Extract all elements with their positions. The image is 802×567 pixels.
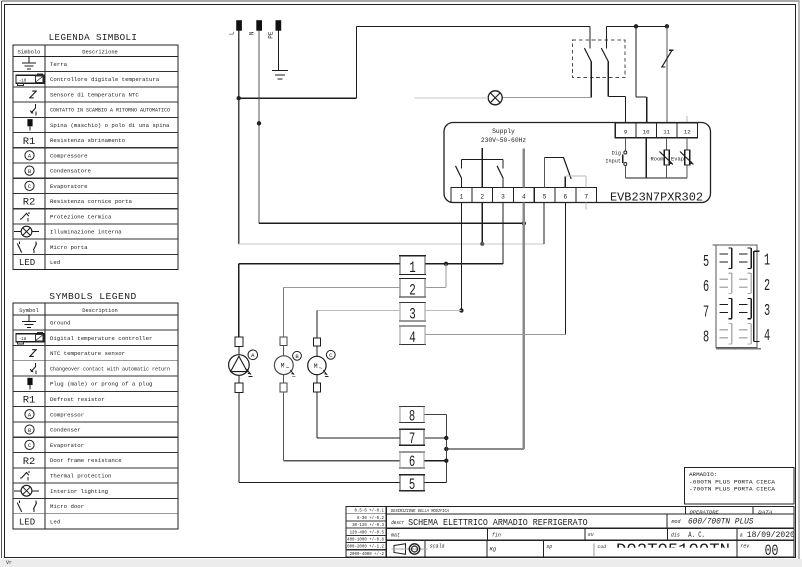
svg-text:Evaporatore: Evaporatore (50, 183, 88, 190)
svg-text:12: 12 (684, 129, 691, 136)
svg-text:Interior lighting: Interior lighting (50, 488, 108, 495)
svg-text:R2: R2 (23, 197, 36, 209)
svg-text:sv: sv (588, 532, 595, 538)
svg-text:7: 7 (703, 304, 709, 322)
svg-text:~: ~ (319, 365, 323, 372)
svg-text:LEGENDA SIMBOLI: LEGENDA SIMBOLI (49, 32, 138, 43)
svg-text:Compressore: Compressore (50, 152, 88, 159)
svg-text:Descrizione: Descrizione (82, 50, 118, 56)
svg-text:7: 7 (409, 430, 415, 448)
svg-text:N: N (249, 31, 256, 35)
svg-text:Evaporator: Evaporator (50, 442, 84, 449)
svg-text:6: 6 (409, 453, 415, 471)
svg-text:fin: fin (492, 532, 501, 538)
svg-text:scala: scala (430, 543, 445, 549)
svg-text:10: 10 (643, 129, 650, 136)
svg-text:3: 3 (409, 307, 416, 325)
svg-text:3: 3 (764, 303, 770, 321)
svg-text:Supply: Supply (492, 128, 515, 135)
svg-text:~: ~ (286, 364, 290, 371)
svg-text:DESCRIZIONE DELLA MODIFICA: DESCRIZIONE DELLA MODIFICA (391, 508, 449, 514)
svg-text:7: 7 (584, 193, 588, 200)
svg-text:R1: R1 (23, 136, 36, 148)
svg-text:Condenser: Condenser (50, 427, 81, 434)
svg-text:5: 5 (543, 193, 547, 200)
svg-text:120-400 +/-0.5: 120-400 +/-0.5 (350, 530, 385, 535)
svg-text:Micro porta: Micro porta (50, 244, 88, 251)
svg-text:Evap: Evap (671, 157, 684, 163)
svg-text:Kg: Kg (490, 545, 497, 552)
svg-text:Ground: Ground (50, 319, 70, 326)
svg-text:6: 6 (564, 193, 568, 200)
svg-text:-700TN PLUS PORTA CIECA: -700TN PLUS PORTA CIECA (689, 485, 775, 492)
svg-text:M: M (281, 363, 285, 370)
svg-text:1: 1 (409, 260, 416, 278)
svg-text:8: 8 (703, 330, 709, 348)
svg-text:cod: cod (598, 544, 607, 550)
svg-text:Digital temperature controller: Digital temperature controller (50, 335, 152, 342)
svg-text:30-120 +/-0.3: 30-120 +/-0.3 (352, 523, 384, 528)
svg-text:NTC temperature sensor: NTC temperature sensor (50, 350, 125, 357)
svg-text:6-30 +/-0.2: 6-30 +/-0.2 (357, 516, 385, 521)
svg-text:A: A (251, 352, 255, 359)
svg-text:DATA: DATA (758, 509, 772, 515)
svg-text:3: 3 (501, 193, 505, 200)
svg-text:Description: Description (82, 308, 118, 314)
svg-text:1000-2000 +/-1.2: 1000-2000 +/-1.2 (345, 545, 385, 550)
svg-text:5: 5 (409, 476, 415, 494)
svg-text:LED: LED (19, 258, 35, 268)
svg-text:Room: Room (651, 157, 664, 163)
svg-text:A. C.: A. C. (688, 532, 705, 540)
svg-text:Vr: Vr (6, 560, 12, 566)
svg-text:Thermal protection: Thermal protection (50, 472, 111, 479)
svg-text:9: 9 (624, 129, 628, 136)
svg-text:4: 4 (409, 331, 416, 349)
svg-text:Spina (maschio) o polo di una: Spina (maschio) o polo di una spina (50, 122, 170, 129)
svg-text:Compressor: Compressor (50, 411, 84, 418)
svg-text:Controllore digitale temperatu: Controllore digitale temperatura (50, 76, 160, 83)
svg-text:18/09/2020: 18/09/2020 (747, 531, 795, 540)
svg-text:LED: LED (19, 518, 35, 528)
svg-text:R1: R1 (23, 395, 36, 407)
svg-text:5: 5 (703, 254, 709, 272)
svg-text:EVB23N7PXR302: EVB23N7PXR302 (610, 191, 703, 205)
svg-text:rev: rev (740, 544, 750, 550)
svg-text:1: 1 (460, 193, 464, 200)
svg-text:a: a (740, 532, 743, 538)
svg-text:Micro door: Micro door (50, 503, 84, 510)
svg-text:R2: R2 (23, 456, 36, 468)
svg-text:ARMADIO:: ARMADIO: (689, 471, 717, 478)
svg-text:CONTATTO IN SCAMBIO A RITORNO: CONTATTO IN SCAMBIO A RITORNO AUTOMATICO (50, 108, 170, 114)
svg-text:4: 4 (764, 328, 770, 346)
svg-text:Protezione termica: Protezione termica (50, 213, 112, 220)
svg-text:8: 8 (409, 408, 415, 426)
svg-text:2000-4000 +/-2: 2000-4000 +/-2 (350, 552, 385, 557)
svg-text:Condensatore: Condensatore (50, 168, 92, 175)
svg-text:descr: descr (391, 520, 404, 526)
svg-text:00: 00 (765, 542, 779, 560)
svg-text:Plug (male) or prong of a plug: Plug (male) or prong of a plug (50, 381, 152, 388)
svg-text:Simbolo: Simbolo (18, 50, 41, 56)
svg-text:SYMBOLS LEGEND: SYMBOLS LEGEND (49, 291, 137, 302)
svg-text:Resistenza sbrinamento: Resistenza sbrinamento (50, 137, 126, 144)
svg-text:11: 11 (663, 129, 670, 136)
svg-text:sp: sp (546, 544, 552, 550)
svg-text:2: 2 (409, 283, 416, 301)
svg-text:M: M (314, 363, 318, 370)
svg-text:Dig: Dig (612, 151, 621, 157)
svg-text:600/700TN PLUS: 600/700TN PLUS (688, 517, 754, 527)
svg-text:mat: mat (391, 532, 400, 538)
svg-text:Resistenza cornice porta: Resistenza cornice porta (50, 198, 133, 205)
svg-text:1: 1 (764, 253, 770, 271)
svg-text:Illuminazione interna: Illuminazione interna (50, 229, 122, 236)
svg-text:-600TN PLUS PORTA CIECA: -600TN PLUS PORTA CIECA (689, 478, 775, 485)
svg-text:2: 2 (480, 193, 484, 200)
svg-text:Led: Led (50, 259, 60, 266)
svg-text:400-1000 +/-0.8: 400-1000 +/-0.8 (347, 538, 384, 543)
svg-text:OPERATORE: OPERATORE (690, 509, 719, 515)
svg-text:2: 2 (764, 278, 770, 296)
svg-text:L: L (229, 31, 236, 35)
svg-text:Sensore di temperatura NTC: Sensore di temperatura NTC (50, 91, 139, 98)
svg-text:mod: mod (672, 519, 681, 525)
svg-text:SCHEMA ELETTRICO ARMADIO REFRI: SCHEMA ELETTRICO ARMADIO REFRIGERATO (408, 518, 587, 528)
svg-text:Door frame resistance: Door frame resistance (50, 457, 122, 464)
svg-text:Terra: Terra (50, 61, 68, 68)
svg-text:0.5-6 +/-0.1: 0.5-6 +/-0.1 (355, 509, 385, 514)
svg-text:dis: dis (671, 532, 680, 538)
svg-text:230V~50-60Hz: 230V~50-60Hz (481, 137, 527, 144)
svg-text:Symbol: Symbol (19, 308, 38, 314)
svg-text:PE: PE (268, 31, 275, 39)
svg-text:4: 4 (522, 193, 526, 200)
svg-text:Defrost resistor: Defrost resistor (50, 396, 105, 403)
svg-text:Changeover contact with automa: Changeover contact with automatic return (50, 366, 170, 372)
svg-text:Input: Input (605, 159, 621, 165)
svg-text:6: 6 (703, 279, 709, 297)
svg-text:Led: Led (50, 518, 60, 525)
